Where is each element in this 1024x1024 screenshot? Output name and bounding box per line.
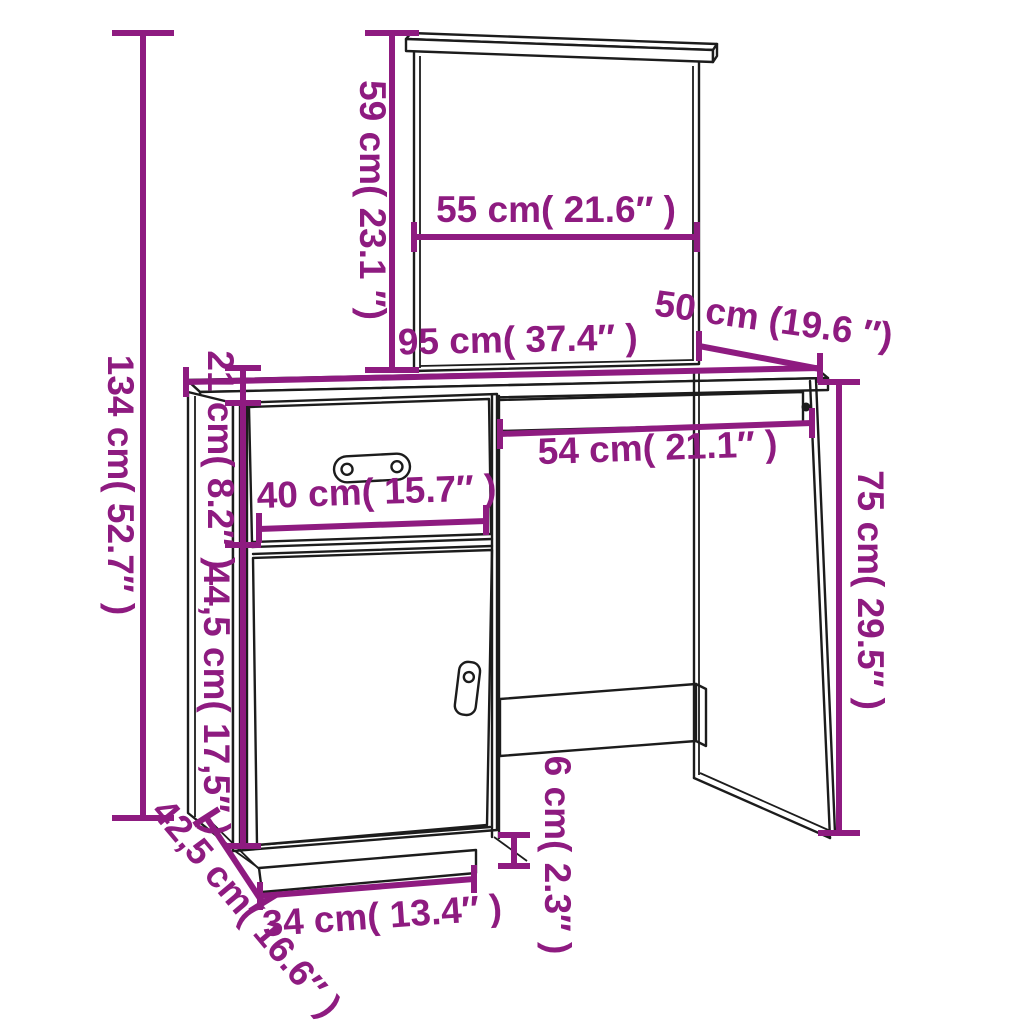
dim-label-door-height: 44,5 cm( 17,5″ ) xyxy=(196,565,237,836)
dim-label-desk-width: 95 cm( 37.4″ ) xyxy=(397,316,638,362)
dim-total-height: 134 cm( 52.7″ ) xyxy=(100,33,174,818)
dim-desk-height: 75 cm( 29.5″ ) xyxy=(818,382,891,833)
dim-label-total-height: 134 cm( 52.7″ ) xyxy=(100,355,141,615)
dim-label-drawer-width: 40 cm( 15.7″ ) xyxy=(256,467,497,516)
modesty-panel xyxy=(500,684,706,756)
diagram-canvas: 134 cm( 52.7″ ) 59 cm( 23.1 ″) 55 cm( 21… xyxy=(0,0,1024,1024)
dim-label-mirror-height: 59 cm( 23.1 ″) xyxy=(352,80,393,320)
dim-label-drawer-height: 21 cm( 8.2″ ) xyxy=(200,350,241,569)
dimension-diagram-page: 134 cm( 52.7″ ) 59 cm( 23.1 ″) 55 cm( 21… xyxy=(0,0,1024,1024)
dim-label-desk-height: 75 cm( 29.5″ ) xyxy=(850,470,891,710)
dim-label-plinth-height: 6 cm( 2.3″ ) xyxy=(537,756,578,955)
dim-mirror-height: 59 cm( 23.1 ″) xyxy=(352,33,419,370)
dim-plinth-height: 6 cm( 2.3″ ) xyxy=(498,756,578,955)
dim-label-mirror-width: 55 cm( 21.6″ ) xyxy=(436,189,676,230)
dim-label-knee-space-width: 54 cm( 21.1″ ) xyxy=(537,423,778,472)
